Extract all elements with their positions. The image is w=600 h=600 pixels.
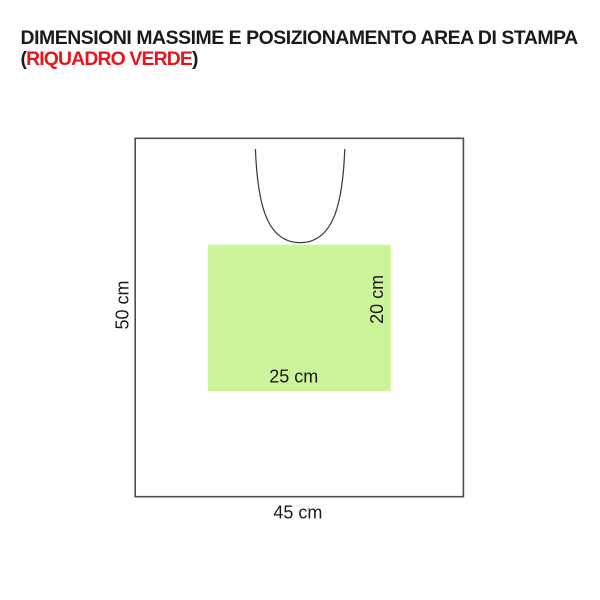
svg-text:50 cm: 50 cm xyxy=(113,280,133,329)
svg-text:(RIQUADRO VERDE): (RIQUADRO VERDE) xyxy=(21,48,198,70)
svg-text:20 cm: 20 cm xyxy=(367,275,387,324)
svg-text:DIMENSIONI MASSIME E POSIZIONA: DIMENSIONI MASSIME E POSIZIONAMENTO AREA… xyxy=(21,27,579,49)
svg-text:25 cm: 25 cm xyxy=(269,367,318,387)
svg-text:45 cm: 45 cm xyxy=(273,503,322,523)
